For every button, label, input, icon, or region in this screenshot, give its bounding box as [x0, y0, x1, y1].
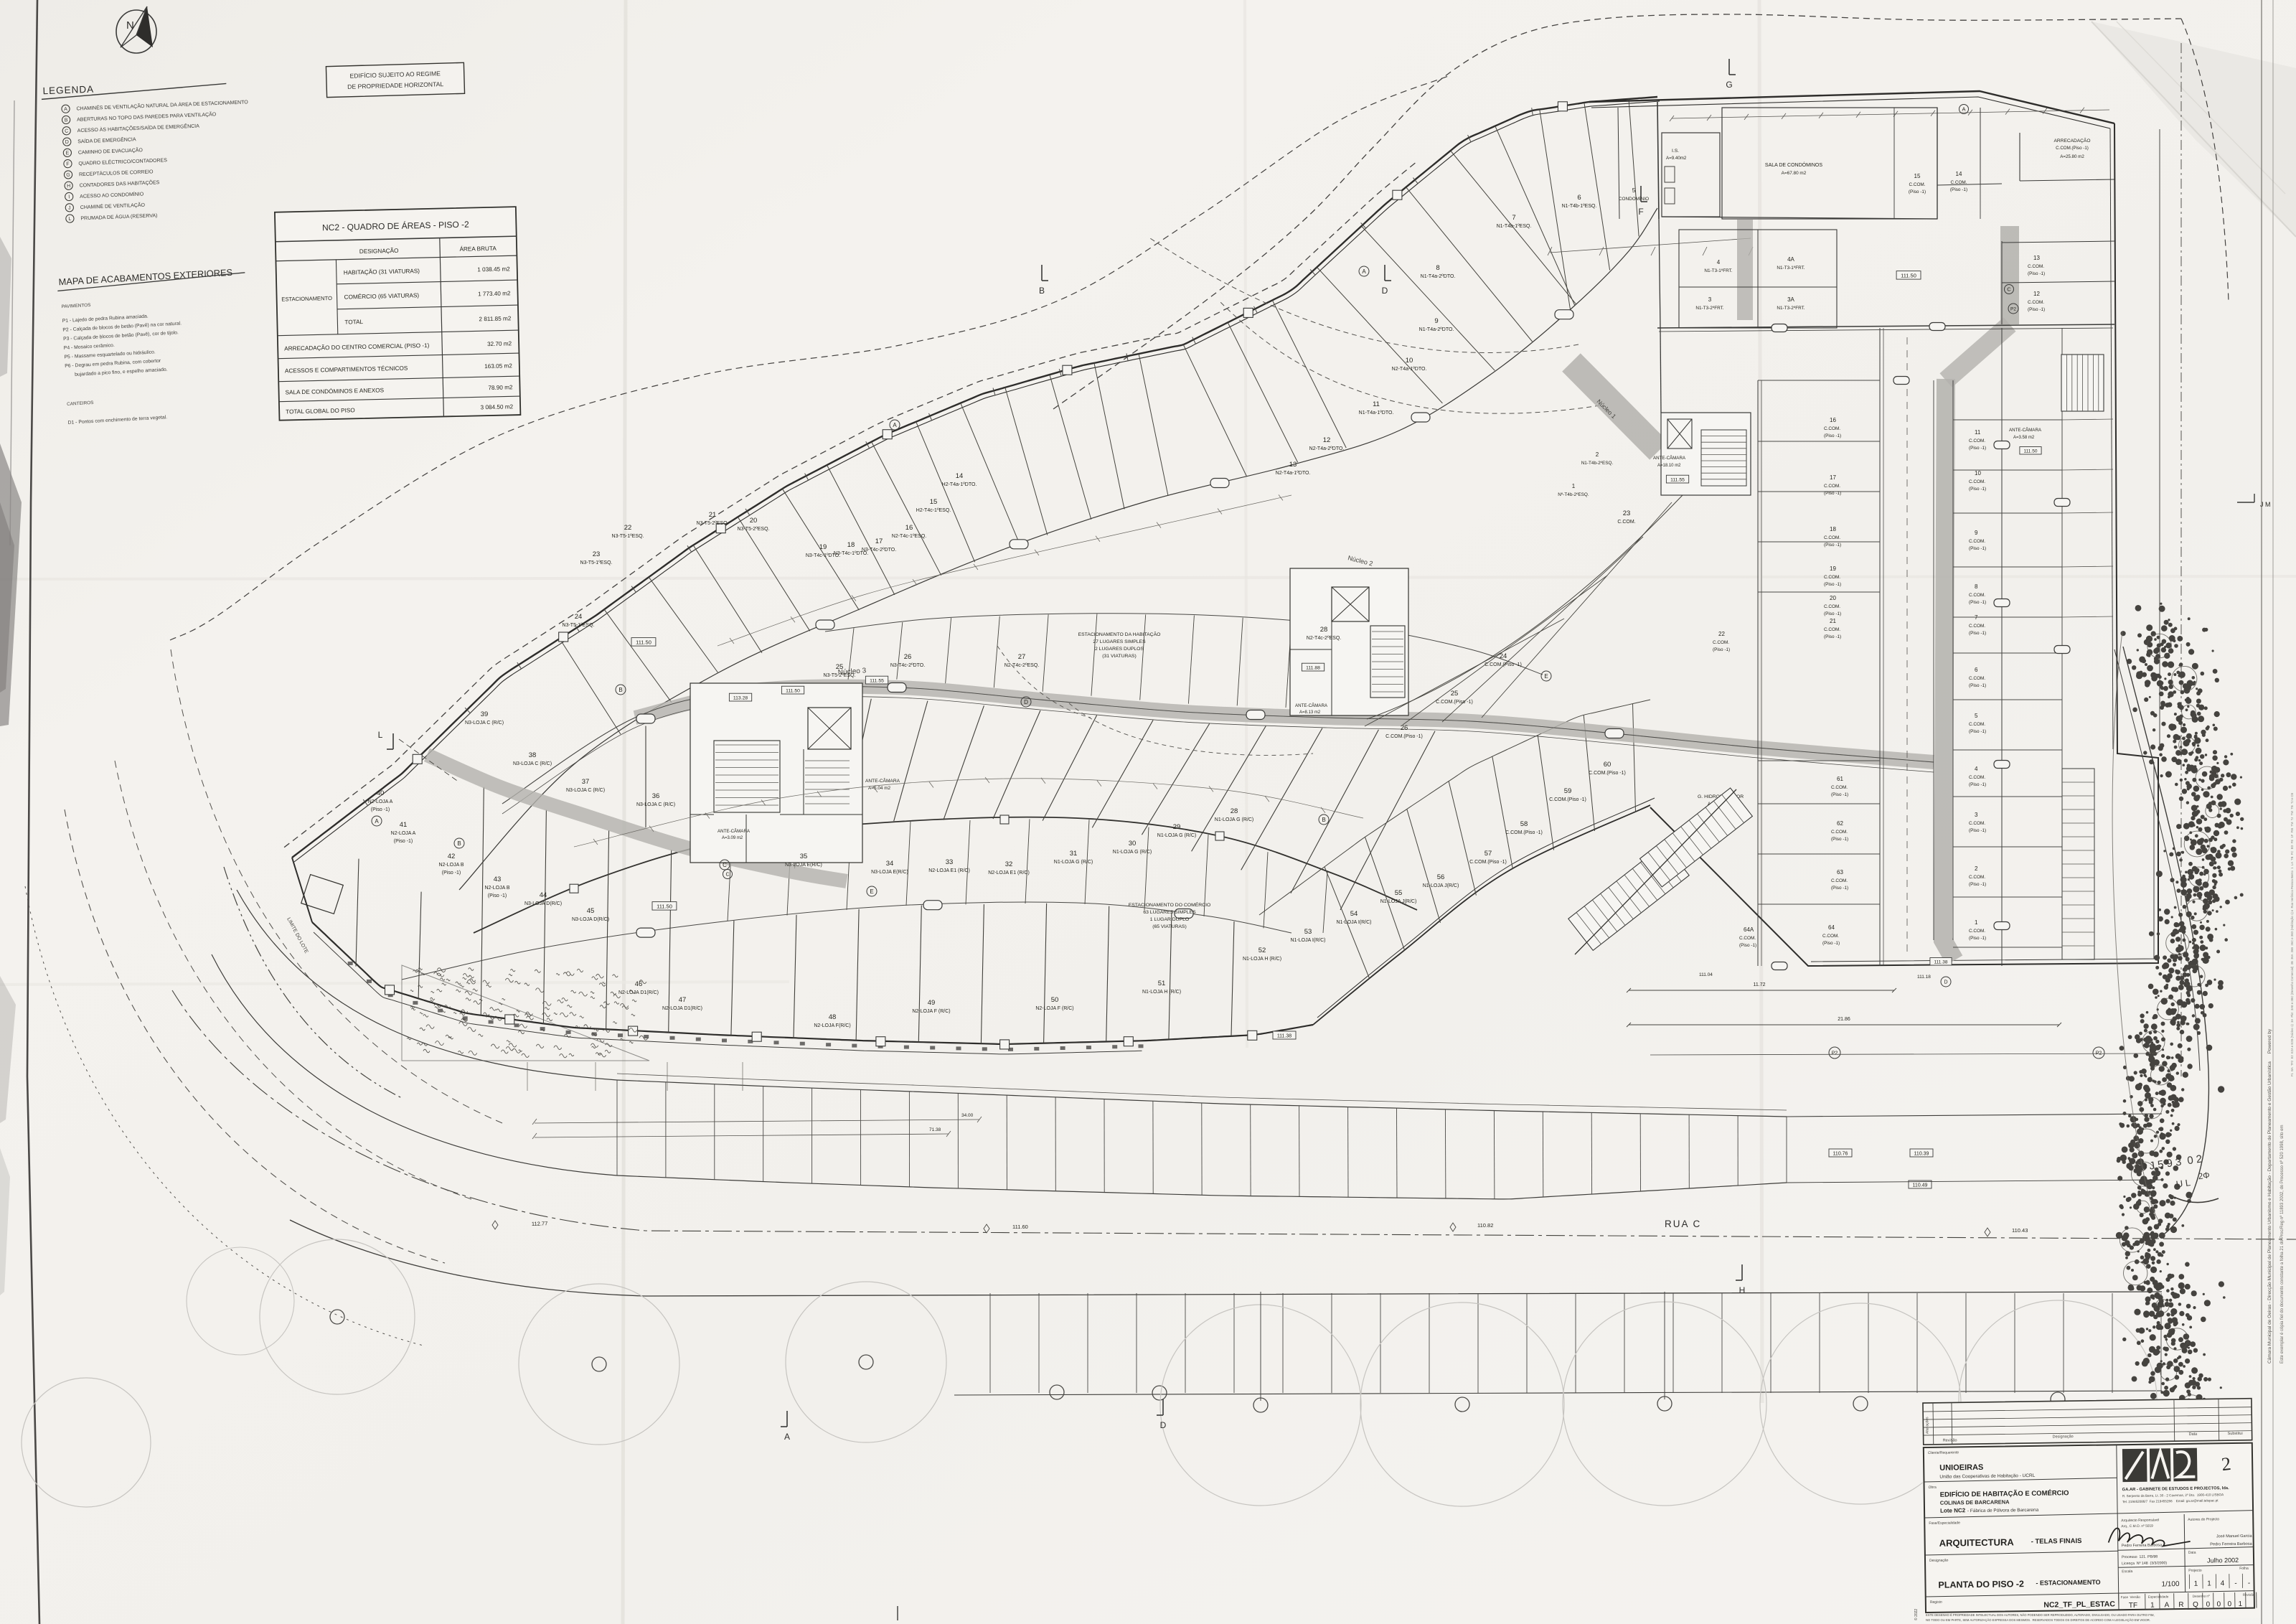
svg-text:SALA DE CONDÓMINOS: SALA DE CONDÓMINOS: [1765, 161, 1822, 168]
svg-text:N2-LOJA F (R/C): N2-LOJA F (R/C): [912, 1009, 950, 1014]
svg-text:110.76: 110.76: [1833, 1152, 1848, 1157]
svg-text:Pedro Ferreira Barbosa: Pedro Ferreira Barbosa: [2210, 1542, 2252, 1547]
svg-text:ARQUITECTURA: ARQUITECTURA: [1939, 1536, 2015, 1548]
svg-text:A=8.13 m2: A=8.13 m2: [1299, 710, 1321, 715]
svg-text:H2-T4a-1ºDTO.: H2-T4a-1ºDTO.: [942, 482, 977, 487]
svg-text:110.82: 110.82: [1477, 1222, 1493, 1229]
svg-text:B: B: [618, 687, 622, 693]
svg-text:22: 22: [1718, 631, 1725, 637]
svg-text:E: E: [870, 888, 873, 895]
svg-text:Cliente/Requerente: Cliente/Requerente: [1928, 1450, 1959, 1455]
svg-text:11: 11: [1975, 429, 1981, 436]
svg-text:A=67.80 m2: A=67.80 m2: [1782, 171, 1807, 176]
svg-text:14: 14: [1956, 171, 1962, 177]
svg-text:C.COM.: C.COM.: [1824, 426, 1840, 431]
svg-text:D: D: [1160, 1420, 1167, 1430]
svg-text:Processo 121. PB/98: Processo 121. PB/98: [2122, 1555, 2158, 1560]
svg-text:50: 50: [1051, 996, 1059, 1004]
svg-text:11: 11: [1373, 400, 1380, 408]
svg-text:3A: 3A: [1787, 296, 1794, 303]
svg-text:2: 2: [1596, 451, 1599, 458]
svg-text:D: D: [1382, 286, 1388, 296]
svg-text:A=3.58 m2: A=3.58 m2: [2013, 436, 2035, 440]
svg-text:40: 40: [377, 789, 385, 797]
svg-text:(Piso -1): (Piso -1): [2028, 271, 2045, 276]
svg-text:C.COM.: C.COM.: [1824, 575, 1840, 580]
svg-text:© 2022: © 2022: [1914, 1609, 1919, 1620]
svg-text:A: A: [375, 818, 379, 825]
svg-text:Arq., C.M.O. nº 5019: Arq., C.M.O. nº 5019: [2121, 1524, 2153, 1529]
svg-text:UNIOEIRAS: UNIOEIRAS: [1939, 1463, 1983, 1473]
svg-text:8: 8: [1436, 264, 1439, 272]
svg-text:TF: TF: [2129, 1602, 2137, 1610]
svg-text:N2-T4c-2ºESQ.: N2-T4c-2ºESQ.: [1004, 663, 1040, 668]
svg-text:A: A: [1962, 106, 1965, 113]
svg-text:Folha: Folha: [2239, 1567, 2249, 1571]
svg-text:N3-T5-2ºESQ.: N3-T5-2ºESQ.: [824, 673, 856, 678]
svg-text:N1-T4a-2ºDTO.: N1-T4a-2ºDTO.: [1421, 274, 1456, 279]
svg-text:Desenho nº: Desenho nº: [2193, 1594, 2210, 1597]
svg-text:C.COM.: C.COM.: [1969, 875, 1985, 880]
svg-text:57: 57: [1485, 850, 1492, 858]
svg-text:15: 15: [1914, 173, 1921, 179]
svg-text:(Piso -1): (Piso -1): [1831, 792, 1848, 797]
svg-text:37: 37: [582, 778, 590, 786]
svg-text:C.COM.(Piso -1): C.COM.(Piso -1): [2056, 146, 2089, 151]
svg-text:Data: Data: [2188, 1551, 2196, 1555]
svg-text:N1-T3-1ºFRT.: N1-T3-1ºFRT.: [1777, 266, 1805, 271]
svg-text:F1 BA TF2 E2 E2A e E2B (Nú: F1 BA TF2 E2 E2A e E2B (Núcleo 1) 3A Plo…: [2290, 793, 2294, 1076]
svg-text:N1-T3-2ºFRT.: N1-T3-2ºFRT.: [1695, 306, 1723, 311]
svg-text:N3-LOJA D(R/C): N3-LOJA D(R/C): [572, 917, 609, 922]
svg-text:25: 25: [1451, 690, 1459, 698]
svg-text:N3-T5-2ºESQ.: N3-T5-2ºESQ.: [738, 527, 770, 532]
svg-text:12: 12: [2033, 291, 2040, 297]
svg-text:(Piso -1): (Piso -1): [1969, 828, 1986, 833]
svg-text:163.05 m2: 163.05 m2: [484, 362, 512, 370]
svg-text:N: N: [126, 19, 134, 32]
svg-text:32.70 m2: 32.70 m2: [487, 340, 512, 347]
svg-text:5: 5: [1632, 187, 1636, 194]
svg-text:Alterações: Alterações: [1925, 1417, 1929, 1434]
svg-text:111.50: 111.50: [2024, 449, 2038, 454]
svg-text:63: 63: [1837, 869, 1843, 876]
svg-text:C.COM.: C.COM.: [1969, 593, 1985, 598]
svg-text:C: C: [2007, 286, 2011, 293]
svg-text:B: B: [457, 840, 461, 847]
svg-text:A: A: [784, 1432, 790, 1442]
svg-text:35: 35: [800, 853, 808, 860]
svg-text:P2: P2: [2010, 306, 2016, 311]
svg-text:2Φ: 2Φ: [2198, 1170, 2211, 1181]
svg-text:111.55: 111.55: [870, 679, 884, 684]
svg-text:N2-LOJA E1 (R/C): N2-LOJA E1 (R/C): [988, 870, 1030, 876]
svg-text:47: 47: [679, 996, 687, 1004]
svg-text:ANTE-CÂMARA: ANTE-CÂMARA: [1653, 456, 1686, 461]
svg-text:A=18.10 m2: A=18.10 m2: [1657, 464, 1681, 468]
svg-text:38: 38: [529, 751, 537, 759]
svg-text:18: 18: [847, 541, 855, 549]
svg-text:(Piso -1): (Piso -1): [1824, 491, 1841, 496]
svg-text:1: 1: [2194, 1580, 2198, 1588]
svg-text:C.COM.: C.COM.: [1824, 604, 1840, 609]
svg-text:A=25.80 m2: A=25.80 m2: [2060, 154, 2084, 159]
svg-text:C.COM.: C.COM.: [1969, 775, 1985, 780]
svg-text:(Piso -1): (Piso -1): [1824, 611, 1841, 616]
svg-text:Câmara Municipal de Oeiras - D: Câmara Municipal de Oeiras - Direcção Mu…: [2267, 1028, 2272, 1363]
svg-text:C.COM.: C.COM.: [1969, 676, 1985, 681]
svg-text:49: 49: [928, 999, 936, 1007]
svg-text:ESTACIONAMENTO: ESTACIONAMENTO: [281, 295, 332, 303]
svg-text:N2-T4a-1ºDTO.: N2-T4a-1ºDTO.: [1276, 471, 1311, 476]
svg-text:64A: 64A: [1744, 926, 1754, 933]
svg-text:1: 1: [1572, 483, 1576, 489]
svg-text:3 084.50 m2: 3 084.50 m2: [481, 403, 514, 410]
svg-text:53: 53: [1304, 928, 1312, 936]
svg-text:N3-LOJA C (R/C): N3-LOJA C (R/C): [513, 761, 552, 766]
svg-text:110.43: 110.43: [2012, 1227, 2028, 1234]
svg-text:(Piso -1): (Piso -1): [2028, 307, 2045, 312]
svg-text:N3-LOJA E(R/C): N3-LOJA E(R/C): [785, 863, 822, 868]
svg-text:Substitui: Substitui: [2228, 1432, 2243, 1436]
svg-text:U L: U L: [2175, 1177, 2191, 1190]
svg-text:ESTACIONAMENTO DA HABITAÇÃO: ESTACIONAMENTO DA HABITAÇÃO: [1078, 631, 1161, 637]
svg-text:C.COM.: C.COM.: [2028, 264, 2044, 269]
svg-text:C.COM.: C.COM.: [1969, 722, 1985, 727]
svg-text:C.COM.: C.COM.: [1824, 535, 1840, 540]
svg-text:3: 3: [1708, 296, 1712, 303]
svg-text:Revisão: Revisão: [2243, 1593, 2255, 1597]
svg-text:C: C: [65, 129, 68, 134]
svg-text:(Piso -1): (Piso -1): [1824, 433, 1841, 438]
svg-text:27 LUGARES SIMPLES: 27 LUGARES SIMPLES: [1093, 639, 1146, 644]
svg-text:E: E: [1544, 673, 1548, 680]
svg-text:61: 61: [1837, 776, 1843, 782]
svg-text:111.50: 111.50: [786, 689, 800, 694]
svg-text:N1-LOJA G (R/C): N1-LOJA G (R/C): [1054, 860, 1093, 865]
svg-text:C.COM.(Piso -1): C.COM.(Piso -1): [1469, 860, 1507, 865]
svg-text:NO TODO OU EM PARTE, SEM AUTOR: NO TODO OU EM PARTE, SEM AUTORIZAÇÃO EXP…: [1926, 1618, 2150, 1622]
svg-text:31: 31: [1070, 850, 1078, 858]
svg-text:10: 10: [1975, 470, 1981, 477]
svg-text:(Piso -1): (Piso -1): [1969, 683, 1986, 688]
svg-text:56: 56: [1437, 873, 1445, 881]
svg-text:0: 0: [2206, 1600, 2211, 1608]
svg-text:N3-LOJA C (R/C): N3-LOJA C (R/C): [636, 802, 675, 807]
svg-text:C.COM.: C.COM.: [1831, 830, 1848, 835]
svg-text:(Piso -1): (Piso -1): [1824, 543, 1841, 548]
svg-text:(Piso -1): (Piso -1): [488, 893, 507, 898]
svg-text:15: 15: [930, 498, 938, 506]
svg-text:111.60: 111.60: [1012, 1224, 1028, 1230]
svg-text:N3-T4c-2ºDTO.: N3-T4c-2ºDTO.: [890, 663, 925, 668]
svg-text:LEGENDA: LEGENDA: [42, 84, 94, 97]
svg-text:17: 17: [875, 538, 883, 545]
svg-text:34.00: 34.00: [961, 1113, 974, 1118]
svg-text:51: 51: [1158, 980, 1166, 987]
svg-text:19: 19: [819, 543, 827, 551]
svg-text:ANTE-CÂMARA: ANTE-CÂMARA: [1295, 703, 1328, 708]
svg-text:N1-LOJA G (R/C): N1-LOJA G (R/C): [1113, 850, 1152, 855]
svg-text:F: F: [1638, 207, 1643, 217]
svg-text:N1-T4b-1ºESQ.: N1-T4b-1ºESQ.: [1562, 204, 1597, 209]
svg-text:28: 28: [1320, 626, 1328, 634]
svg-text:(Piso -1): (Piso -1): [1969, 936, 1986, 941]
svg-text:52: 52: [1258, 947, 1266, 954]
svg-text:112.77: 112.77: [532, 1220, 548, 1227]
svg-text:5: 5: [1975, 713, 1978, 719]
svg-text:ANTE-CÂMARA: ANTE-CÂMARA: [865, 777, 900, 784]
svg-text:111.88: 111.88: [1306, 666, 1320, 671]
svg-text:Especialidade: Especialidade: [2148, 1595, 2169, 1598]
svg-text:DESIGNAÇÃO: DESIGNAÇÃO: [359, 247, 399, 255]
svg-text:RUA C: RUA C: [1665, 1219, 1701, 1229]
svg-text:Autores do Projecto: Autores do Projecto: [2188, 1517, 2219, 1522]
svg-text:Lote NC2: Lote NC2: [1940, 1507, 1966, 1513]
svg-text:N1-T4a-2ºDTO.: N1-T4a-2ºDTO.: [1419, 327, 1454, 332]
svg-text:N3-LOJA C (R/C): N3-LOJA C (R/C): [566, 788, 605, 793]
svg-text:N3-T5-1ºESQ.: N3-T5-1ºESQ.: [580, 560, 613, 565]
svg-text:B: B: [1322, 817, 1325, 823]
svg-text:Designação: Designação: [1929, 1559, 1949, 1563]
svg-text:45: 45: [587, 907, 595, 915]
svg-text:E: E: [65, 151, 69, 156]
svg-text:C.COM.: C.COM.: [1909, 182, 1925, 187]
svg-text:(Piso -1): (Piso -1): [394, 839, 413, 844]
svg-text:I: I: [68, 194, 70, 200]
svg-text:H2-T4c-1ºESQ.: H2-T4c-1ºESQ.: [916, 508, 951, 513]
svg-text:C: C: [723, 862, 727, 868]
svg-text:C.COM.: C.COM.: [1969, 438, 1985, 443]
svg-text:N1-T3-1ºFRT.: N1-T3-1ºFRT.: [1704, 268, 1732, 273]
svg-text:D: D: [65, 140, 69, 145]
svg-text:ANTE-CÂMARA: ANTE-CÂMARA: [2009, 428, 2042, 433]
svg-text:(Piso -1): (Piso -1): [1969, 631, 1986, 636]
svg-text:1 LUGAR DUPLO: 1 LUGAR DUPLO: [1150, 917, 1189, 922]
svg-text:Data: Data: [2189, 1432, 2198, 1437]
svg-text:C.COM.: C.COM.: [1739, 936, 1756, 941]
svg-text:ARRECADAÇÃO: ARRECADAÇÃO: [2054, 137, 2091, 144]
svg-text:TOTAL: TOTAL: [344, 319, 363, 326]
svg-text:110.49: 110.49: [1913, 1183, 1928, 1188]
svg-text:17: 17: [1830, 474, 1836, 481]
svg-text:7: 7: [1512, 214, 1515, 222]
svg-text:N3-T4c-1ºDTO.: N3-T4c-1ºDTO.: [806, 553, 840, 558]
svg-text:N1-T4a-1ºDTO.: N1-T4a-1ºDTO.: [1359, 410, 1394, 416]
svg-text:22: 22: [624, 524, 632, 532]
svg-text:2 811.85 m2: 2 811.85 m2: [479, 315, 512, 322]
svg-text:CONDOMÍNIO: CONDOMÍNIO: [1619, 195, 1649, 202]
svg-text:F: F: [66, 161, 70, 166]
svg-text:(Piso -1): (Piso -1): [1909, 189, 1926, 194]
svg-text:N2-LOJA B: N2-LOJA B: [438, 863, 464, 868]
svg-text:N1-LOJA G (R/C): N1-LOJA G (R/C): [1157, 833, 1196, 838]
svg-text:G: G: [66, 173, 70, 178]
svg-text:N3-LOJA C (R/C): N3-LOJA C (R/C): [465, 721, 504, 726]
svg-text:N2-LOJA F(R/C): N2-LOJA F(R/C): [814, 1023, 850, 1028]
svg-text:P2: P2: [1832, 1051, 1838, 1056]
svg-text:C.COM.: C.COM.: [1969, 929, 1985, 934]
svg-text:2 LUGARES DUPLOS: 2 LUGARES DUPLOS: [1095, 647, 1144, 652]
svg-text:N2-LOJA B: N2-LOJA B: [484, 886, 509, 891]
svg-text:(31 VIATURAS): (31 VIATURAS): [1102, 654, 1136, 659]
svg-text:32: 32: [1005, 860, 1013, 868]
svg-text:N1-LOJA I(R/C): N1-LOJA I(R/C): [1336, 920, 1371, 925]
svg-text:N3-LOJA D(R/C): N3-LOJA D(R/C): [524, 901, 562, 906]
svg-text:N1-LOJA G (R/C): N1-LOJA G (R/C): [1215, 817, 1253, 822]
svg-text:G: G: [1726, 80, 1732, 90]
svg-text:(Piso -1): (Piso -1): [1969, 487, 1986, 492]
svg-text:16: 16: [905, 524, 913, 532]
svg-text:N3-T5-2ºESQ.: N3-T5-2ºESQ.: [697, 521, 729, 526]
svg-text:PLANTA DO PISO -2: PLANTA DO PISO -2: [1938, 1579, 2024, 1590]
svg-text:N1-LOJA J(R/C): N1-LOJA J(R/C): [1380, 899, 1417, 904]
svg-text:111.55: 111.55: [1670, 478, 1685, 483]
svg-text:Julho 2002: Julho 2002: [2207, 1557, 2239, 1564]
svg-text:Arquitecto Responsável: Arquitecto Responsável: [2121, 1518, 2159, 1523]
svg-text:A: A: [893, 422, 897, 428]
svg-text:N3-LOJA E(R/C): N3-LOJA E(R/C): [871, 870, 908, 875]
svg-text:(Piso -1): (Piso -1): [1824, 582, 1841, 587]
svg-text:(Piso -1): (Piso -1): [1969, 882, 1986, 887]
svg-text:(Piso -1): (Piso -1): [1969, 729, 1986, 734]
svg-text:64: 64: [1828, 924, 1835, 931]
svg-text:N1-LOJA H (R/C): N1-LOJA H (R/C): [1142, 990, 1181, 995]
svg-text:C.COM.: C.COM.: [1831, 785, 1848, 790]
svg-text:1: 1: [1975, 919, 1978, 926]
svg-text:N2-T4c-2ºESQ.: N2-T4c-2ºESQ.: [1307, 636, 1342, 641]
svg-text:111.50: 111.50: [657, 903, 672, 910]
svg-text:- Fábrica de Pólvora de Barcar: - Fábrica de Pólvora de Barcarena: [1966, 1508, 2039, 1513]
svg-text:C.COM.: C.COM.: [1824, 627, 1840, 632]
svg-text:- TELAS FINAIS: - TELAS FINAIS: [2031, 1537, 2082, 1546]
svg-text:4: 4: [1975, 766, 1978, 772]
svg-text:16: 16: [1830, 417, 1836, 423]
svg-text:Nº-T4b-2ºESQ.: Nº-T4b-2ºESQ.: [1558, 492, 1589, 497]
svg-text:26: 26: [1401, 724, 1408, 732]
svg-text:D: D: [1024, 699, 1028, 705]
svg-text:C.COM.: C.COM.: [1969, 539, 1985, 544]
svg-text:ESTE DESENHO É PROPRIEDADE INT: ESTE DESENHO É PROPRIEDADE INTELECTUAL D…: [1926, 1613, 2155, 1617]
svg-text:71.38: 71.38: [929, 1127, 941, 1132]
svg-text:62: 62: [1837, 820, 1843, 827]
svg-text:46: 46: [635, 980, 643, 988]
svg-text:60: 60: [1604, 761, 1612, 769]
svg-text:(Piso -1): (Piso -1): [1831, 837, 1848, 842]
svg-text:-: -: [2234, 1580, 2236, 1587]
svg-text:111.50: 111.50: [1901, 273, 1916, 279]
svg-text:43: 43: [494, 876, 502, 883]
svg-text:25: 25: [836, 663, 844, 671]
svg-text:C.COM.: C.COM.: [1969, 624, 1985, 629]
svg-text:Licença Nº 148 (3/3/2000): Licença Nº 148 (3/3/2000): [2122, 1561, 2167, 1566]
svg-text:21: 21: [1830, 618, 1836, 624]
svg-text:N2-LOJA E1 (R/C): N2-LOJA E1 (R/C): [928, 868, 970, 873]
svg-text:C.COM.: C.COM.: [1713, 640, 1729, 645]
svg-text:C.COM.(Piso -1): C.COM.(Piso -1): [1549, 797, 1586, 802]
svg-text:C.COM.: C.COM.: [1617, 520, 1635, 525]
svg-text:(Piso -1): (Piso -1): [1969, 782, 1986, 787]
svg-text:6: 6: [1975, 667, 1978, 673]
svg-text:34: 34: [886, 860, 894, 868]
svg-text:(65 VIATURAS): (65 VIATURAS): [1152, 924, 1186, 929]
svg-text:(Piso -1): (Piso -1): [371, 807, 390, 812]
svg-text:4: 4: [1717, 259, 1721, 266]
svg-text:N2-T4a-2ºDTO.: N2-T4a-2ºDTO.: [1309, 446, 1345, 451]
svg-text:48: 48: [829, 1013, 837, 1021]
svg-text:27: 27: [1018, 653, 1026, 661]
svg-text:(Piso -1): (Piso -1): [442, 870, 461, 876]
svg-text:30: 30: [1129, 840, 1137, 848]
svg-text:C.COM.: C.COM.: [1831, 878, 1848, 883]
svg-text:Fase/Especialidade: Fase/Especialidade: [1929, 1521, 1960, 1526]
svg-text:C.COM.(Piso -1): C.COM.(Piso -1): [1385, 734, 1423, 739]
svg-text:L: L: [68, 217, 71, 222]
svg-text:N2-T4a-1ºDTO.: N2-T4a-1ºDTO.: [1392, 367, 1427, 372]
svg-text:36: 36: [652, 792, 660, 800]
svg-text:A=9.40m2: A=9.40m2: [1666, 156, 1687, 161]
svg-text:(Piso -1): (Piso -1): [1969, 546, 1986, 551]
svg-text:Designação: Designação: [2053, 1435, 2074, 1439]
svg-text:111.38: 111.38: [1277, 1034, 1291, 1039]
svg-text:N1-T3-2ºFRT.: N1-T3-2ºFRT.: [1777, 306, 1805, 311]
svg-text:21.86: 21.86: [1838, 1017, 1850, 1022]
svg-text:1: 1: [2239, 1600, 2243, 1608]
svg-text:C.COM.: C.COM.: [1969, 821, 1985, 826]
svg-text:Projecto: Projecto: [2188, 1569, 2202, 1573]
svg-text:José Manuel Garcia: José Manuel Garcia: [2216, 1534, 2253, 1539]
svg-text:C.COM.: C.COM.: [1824, 484, 1840, 489]
svg-text:-: -: [2248, 1580, 2250, 1587]
svg-text:20: 20: [750, 517, 758, 525]
svg-text:55: 55: [1395, 889, 1403, 897]
svg-text:A=3.09 m2: A=3.09 m2: [722, 836, 743, 840]
svg-text:Pedro Ferreira Barbosa: Pedro Ferreira Barbosa: [2122, 1543, 2162, 1548]
svg-text:A: A: [1362, 268, 1366, 275]
svg-text:111.50: 111.50: [636, 639, 651, 646]
svg-text:C.COM.(Piso -1): C.COM.(Piso -1): [1485, 662, 1522, 667]
svg-text:COLINAS DE BARCARENA: COLINAS DE BARCARENA: [1940, 1498, 2010, 1506]
svg-text:19: 19: [1830, 565, 1836, 572]
svg-text:8: 8: [1975, 583, 1978, 590]
svg-text:58: 58: [1520, 820, 1528, 828]
svg-text:N3-T5-1ºESQ.: N3-T5-1ºESQ.: [612, 534, 644, 539]
svg-text:N2-LOJA A: N2-LOJA A: [368, 799, 393, 804]
svg-text:D: D: [1944, 980, 1947, 985]
svg-text:N2-LOJA A: N2-LOJA A: [391, 831, 416, 836]
svg-text:13: 13: [1289, 461, 1297, 469]
svg-text:29: 29: [1173, 823, 1181, 831]
svg-text:14: 14: [956, 472, 964, 480]
svg-text:B: B: [65, 118, 68, 123]
svg-text:C.COM.(Piso -1): C.COM.(Piso -1): [1505, 830, 1543, 835]
svg-text:63 LUGARES SIMPLES: 63 LUGARES SIMPLES: [1143, 910, 1196, 915]
svg-text:C.COM.(Piso -1): C.COM.(Piso -1): [1589, 771, 1626, 776]
svg-text:111.38: 111.38: [1934, 960, 1948, 965]
svg-text:A=5.04 m2: A=5.04 m2: [868, 786, 891, 791]
svg-text:23: 23: [593, 550, 601, 558]
svg-text:C.COM.: C.COM.: [1822, 934, 1839, 939]
svg-text:Obra: Obra: [1929, 1485, 1937, 1490]
svg-text:I.S.: I.S.: [1672, 149, 1679, 154]
svg-text:J: J: [68, 206, 71, 211]
svg-text:Escala: Escala: [2122, 1569, 2132, 1574]
svg-text:R: R: [2178, 1601, 2183, 1609]
svg-text:3: 3: [1975, 812, 1978, 818]
svg-text:1 773.40 m2: 1 773.40 m2: [478, 290, 511, 297]
svg-text:9: 9: [1434, 317, 1438, 325]
svg-text:N3-T5-1ºESQ.: N3-T5-1ºESQ.: [563, 623, 595, 628]
